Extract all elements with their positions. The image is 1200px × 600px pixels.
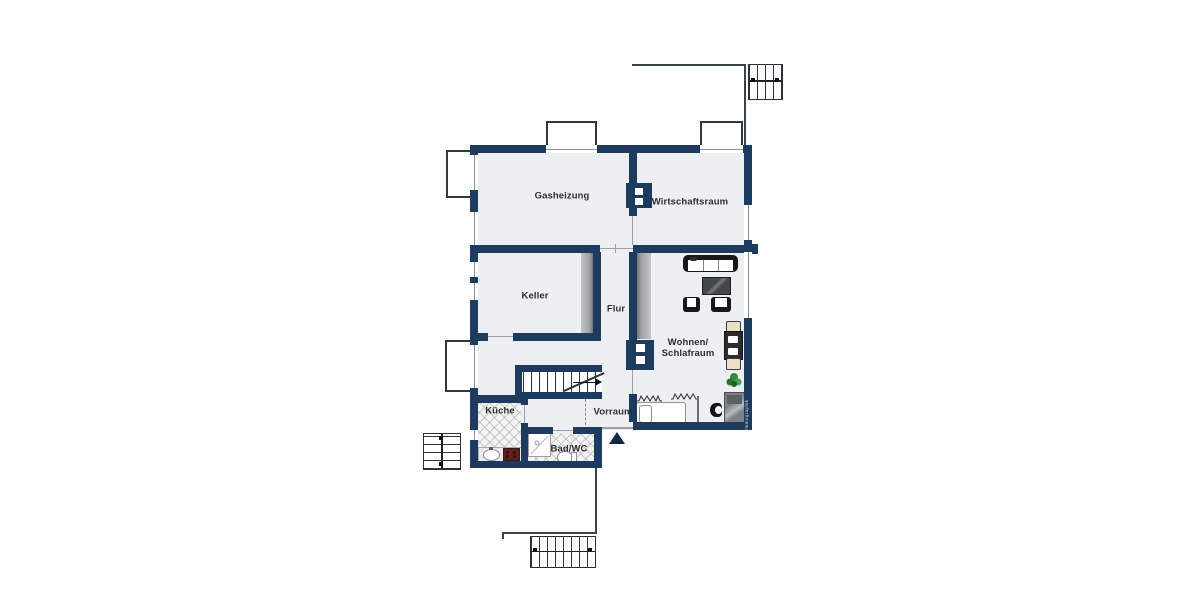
window <box>470 212 478 245</box>
armchair-icon <box>683 297 700 312</box>
watermark-text: Immographik <box>745 386 750 430</box>
shelf-icon <box>581 253 593 335</box>
wall-segment <box>593 145 700 153</box>
exterior-stair-top-right <box>748 64 783 100</box>
room-label-wirtschaftsraum: Wirtschaftsraum <box>652 197 728 208</box>
stair-dot <box>751 78 755 82</box>
wall-segment <box>521 427 553 434</box>
burner <box>506 455 509 458</box>
shower-icon <box>528 433 551 457</box>
entrance-threshold <box>602 427 633 429</box>
path-outline-vertical <box>595 468 597 534</box>
floor-plan-canvas: Gasheizung Wirtschaftsraum Keller Flur W… <box>0 0 1200 600</box>
wall-segment <box>470 190 478 212</box>
room-label-gasheizung: Gasheizung <box>535 191 590 202</box>
room-label-flur: Flur <box>607 304 625 315</box>
wall-segment <box>744 145 752 205</box>
wardrobe-icon <box>637 253 651 339</box>
stair-dot <box>533 548 537 552</box>
wall-segment <box>470 245 600 253</box>
stair-dot <box>588 548 592 552</box>
sofa-pillow <box>690 257 697 261</box>
terrace-outline-horizontal <box>632 64 746 66</box>
stair-direction-line <box>573 382 597 383</box>
coffee-table-icon <box>702 277 731 295</box>
window-bay-top-right <box>700 121 743 148</box>
desk-chair-icon <box>710 402 724 419</box>
light-shaft-upper <box>446 150 472 198</box>
wall-segment <box>629 252 637 340</box>
sofa-cushions <box>688 260 733 271</box>
chimney-flue <box>636 344 645 352</box>
stove-icon <box>503 448 520 461</box>
wall-segment <box>521 395 528 405</box>
window <box>744 205 752 240</box>
room-label-kueche: Küche <box>485 406 515 417</box>
dining-table-icon <box>724 331 743 360</box>
window <box>700 145 743 153</box>
armchair-seat <box>715 298 727 307</box>
armchair-icon <box>711 297 731 312</box>
desk-chair-seat <box>715 406 722 414</box>
door-opening <box>488 336 513 337</box>
wall-segment <box>470 395 527 403</box>
entrance-arrow-icon <box>609 432 625 444</box>
wall-nub <box>752 244 758 254</box>
wall-segment <box>470 145 546 153</box>
window-bay-top-left <box>546 121 597 148</box>
chimney-flue <box>635 188 643 195</box>
stair-arrow-head <box>595 378 602 386</box>
ceiling-break-line <box>585 399 586 425</box>
door-opening <box>632 216 633 245</box>
stair-dot <box>439 436 443 440</box>
room-label-wohnen-schlafraum: Wohnen/ Schlafraum <box>662 338 715 360</box>
pillow <box>639 405 652 423</box>
window <box>546 145 597 153</box>
plant-icon <box>725 371 743 389</box>
room-label-vorraum: Vorraum <box>593 407 632 418</box>
sofa-divider <box>718 260 719 271</box>
terrace-outline-vertical <box>744 64 746 146</box>
radiator-icon <box>671 392 698 401</box>
wall-segment <box>629 208 637 216</box>
wall-segment <box>515 365 602 372</box>
dining-chair-icon <box>726 358 741 370</box>
sofa-icon <box>683 255 738 272</box>
room-label-bad-wc: Bad/WC <box>550 444 587 455</box>
chimney-flue <box>635 198 643 205</box>
place-setting <box>728 348 738 355</box>
path-outline-tick <box>502 532 504 539</box>
desk-top <box>727 395 742 404</box>
sofa-divider <box>703 260 704 271</box>
door-opening <box>553 430 573 431</box>
sink-icon <box>483 449 500 461</box>
chimney-flue <box>636 356 645 364</box>
window <box>470 283 478 300</box>
door-opening-tick <box>615 244 616 253</box>
wall-segment <box>593 252 601 340</box>
path-outline-horizontal <box>502 532 597 534</box>
window <box>470 430 478 440</box>
interior-stair <box>515 372 602 392</box>
exterior-stair-left <box>423 433 461 470</box>
door-opening <box>632 370 633 394</box>
wall-segment <box>477 333 488 341</box>
wall-segment <box>470 461 602 468</box>
window <box>470 262 478 277</box>
partition-line <box>697 396 699 425</box>
door-opening <box>524 405 525 423</box>
faucet-icon <box>489 447 493 450</box>
wall-segment <box>629 152 637 183</box>
wall-segment <box>633 245 752 253</box>
exterior-stair-bottom <box>530 536 596 568</box>
stair-midline <box>531 551 595 553</box>
light-shaft-lower <box>445 340 472 392</box>
stair-dot <box>439 462 443 466</box>
wall-segment <box>513 333 601 341</box>
armchair-seat <box>687 298 696 307</box>
place-setting <box>728 336 738 343</box>
wall-segment <box>470 145 478 155</box>
radiator-icon <box>637 394 662 403</box>
burner <box>513 455 516 458</box>
window <box>470 155 478 190</box>
door-opening <box>600 248 633 249</box>
wall-segment <box>633 422 752 430</box>
burner <box>513 451 516 454</box>
room-label-keller: Keller <box>521 291 548 302</box>
window <box>744 252 752 318</box>
wall-segment <box>515 392 602 399</box>
stair-dot <box>775 78 779 82</box>
window <box>470 345 478 388</box>
burner <box>506 451 509 454</box>
